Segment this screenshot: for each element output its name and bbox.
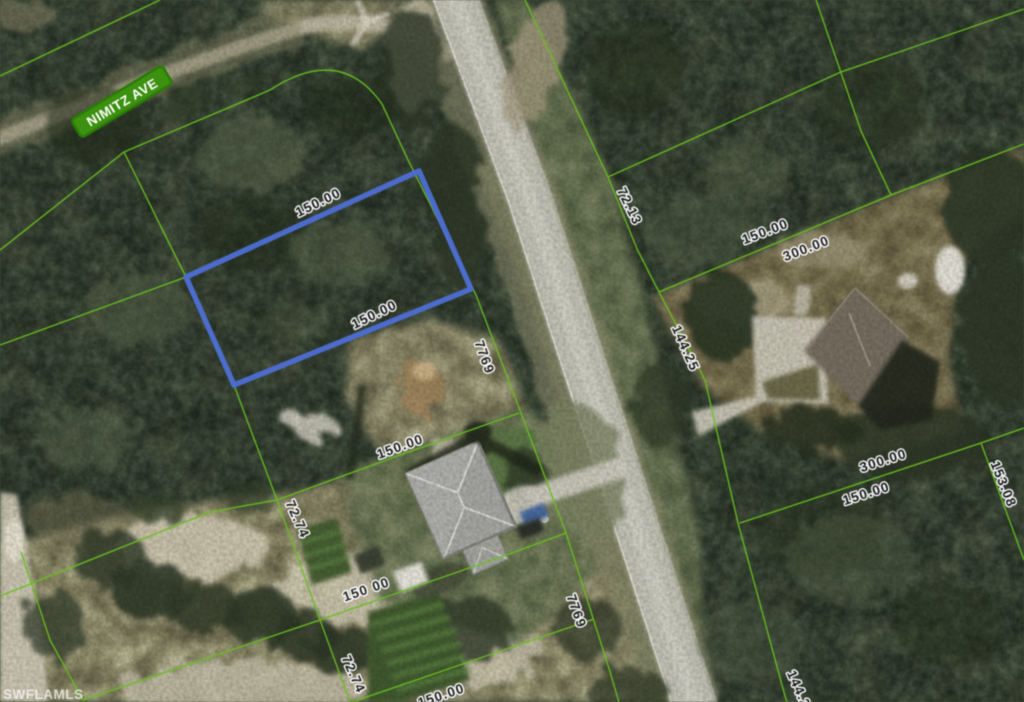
svg-text:SWFLAMLS: SWFLAMLS: [3, 687, 84, 702]
